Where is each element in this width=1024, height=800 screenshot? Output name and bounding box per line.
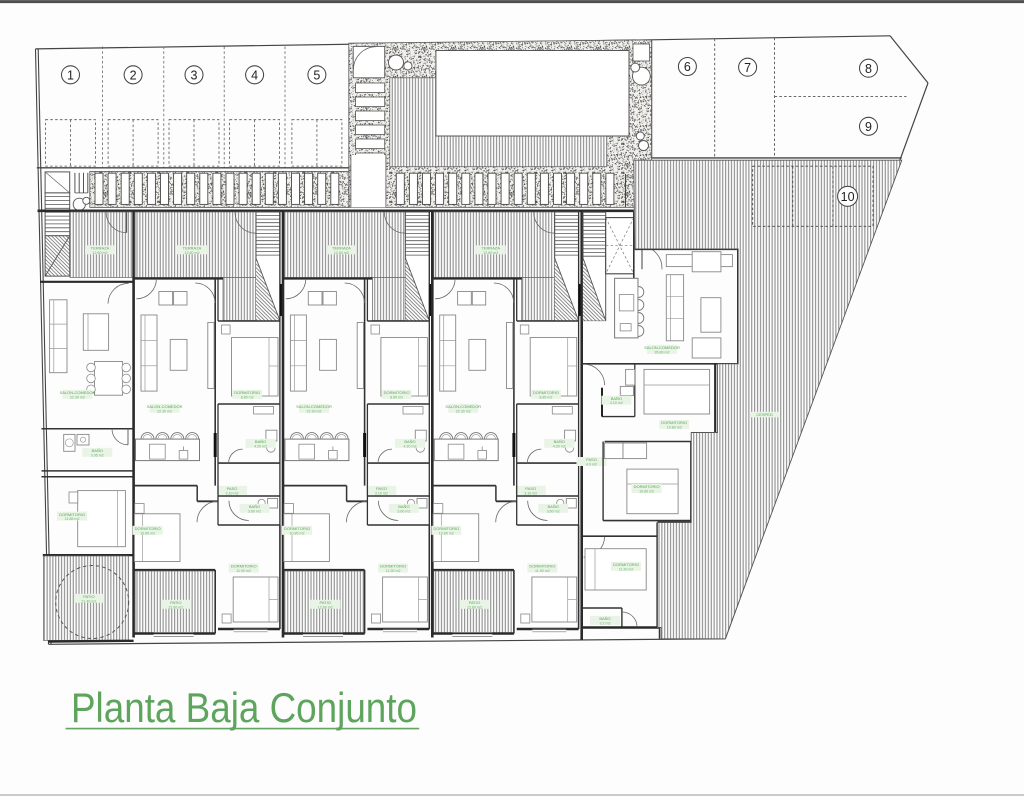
svg-text:9: 9 bbox=[865, 120, 872, 134]
svg-text:PASO: PASO bbox=[376, 486, 387, 491]
svg-text:1: 1 bbox=[67, 68, 74, 82]
svg-text:11.90 m2: 11.90 m2 bbox=[236, 569, 251, 573]
svg-text:PATIO: PATIO bbox=[469, 600, 480, 605]
svg-text:SALON-COMEDOR: SALON-COMEDOR bbox=[644, 345, 680, 350]
svg-text:DORMITORIO: DORMITORIO bbox=[613, 562, 639, 567]
svg-text:DORMITORIO: DORMITORIO bbox=[384, 390, 410, 395]
svg-text:7: 7 bbox=[744, 61, 751, 75]
svg-text:12.60 m2: 12.60 m2 bbox=[168, 605, 183, 609]
svg-text:SALON-COMEDOR: SALON-COMEDOR bbox=[60, 390, 96, 395]
svg-text:BAÑO: BAÑO bbox=[599, 616, 610, 621]
svg-text:PASO: PASO bbox=[227, 486, 238, 491]
svg-text:SALON-COMEDOR: SALON-COMEDOR bbox=[445, 404, 481, 409]
svg-text:BAÑO: BAÑO bbox=[92, 448, 103, 453]
svg-text:4.20 m2: 4.20 m2 bbox=[553, 444, 566, 448]
svg-text:PATIO: PATIO bbox=[170, 600, 181, 605]
svg-text:PATIO: PATIO bbox=[83, 594, 94, 599]
svg-text:26.80 m2: 26.80 m2 bbox=[655, 350, 670, 354]
svg-text:10.85 m2: 10.85 m2 bbox=[140, 531, 155, 535]
svg-text:Planta Baja Conjunto: Planta Baja Conjunto bbox=[71, 684, 417, 731]
svg-text:4.20 m2: 4.20 m2 bbox=[404, 444, 417, 448]
svg-text:CESPED: CESPED bbox=[756, 412, 773, 417]
svg-text:4.10 m2: 4.10 m2 bbox=[610, 401, 623, 405]
svg-text:3: 3 bbox=[191, 68, 198, 82]
svg-text:2: 2 bbox=[130, 68, 137, 82]
svg-text:11.90 m2: 11.90 m2 bbox=[535, 569, 550, 573]
svg-text:3.10 m2: 3.10 m2 bbox=[226, 491, 239, 495]
svg-text:4: 4 bbox=[251, 68, 258, 82]
svg-text:PASO: PASO bbox=[525, 486, 536, 491]
svg-text:SALON-COMEDOR: SALON-COMEDOR bbox=[296, 404, 332, 409]
svg-text:3.60 m2: 3.60 m2 bbox=[248, 509, 261, 513]
svg-text:8.85 m2: 8.85 m2 bbox=[390, 395, 403, 399]
svg-text:3.10 m2: 3.10 m2 bbox=[375, 491, 388, 495]
svg-text:DORMITORIO: DORMITORIO bbox=[234, 390, 260, 395]
svg-text:5: 5 bbox=[313, 68, 320, 82]
svg-text:10.85 m2: 10.85 m2 bbox=[290, 531, 305, 535]
svg-text:DORMITORIO: DORMITORIO bbox=[380, 564, 406, 569]
svg-text:12.60 m2: 12.60 m2 bbox=[93, 251, 108, 255]
svg-text:10: 10 bbox=[841, 190, 855, 204]
svg-text:DORMITORIO: DORMITORIO bbox=[59, 512, 85, 517]
svg-text:BAÑO: BAÑO bbox=[249, 504, 260, 509]
svg-text:8.85 m2: 8.85 m2 bbox=[539, 395, 552, 399]
svg-text:PATIO: PATIO bbox=[319, 600, 330, 605]
svg-text:4.9 m2: 4.9 m2 bbox=[586, 463, 597, 467]
svg-text:22.30 m2: 22.30 m2 bbox=[456, 409, 471, 413]
svg-text:10.80 m2: 10.80 m2 bbox=[667, 426, 682, 430]
svg-text:DORMITORIO: DORMITORIO bbox=[634, 484, 660, 489]
svg-text:BAÑO: BAÑO bbox=[255, 439, 266, 444]
svg-text:4.20 m2: 4.20 m2 bbox=[254, 444, 267, 448]
svg-text:DORMITORIO: DORMITORIO bbox=[533, 390, 559, 395]
svg-text:12.60 m2: 12.60 m2 bbox=[318, 605, 333, 609]
svg-text:6: 6 bbox=[684, 60, 691, 74]
svg-text:11.85 m2: 11.85 m2 bbox=[65, 517, 80, 521]
svg-text:PASO: PASO bbox=[586, 457, 597, 462]
svg-text:DORMITORIO: DORMITORIO bbox=[284, 526, 310, 531]
svg-text:10.85 m2: 10.85 m2 bbox=[439, 531, 454, 535]
svg-text:3.95 m2: 3.95 m2 bbox=[91, 453, 104, 457]
svg-text:12.60 m2: 12.60 m2 bbox=[185, 251, 200, 255]
svg-text:BAÑO: BAÑO bbox=[398, 504, 409, 509]
svg-text:12.60 m2: 12.60 m2 bbox=[483, 251, 498, 255]
svg-text:8: 8 bbox=[865, 62, 872, 76]
svg-text:DORMITORIO: DORMITORIO bbox=[231, 564, 257, 569]
svg-text:BAÑO: BAÑO bbox=[548, 504, 559, 509]
svg-text:3.2 m2: 3.2 m2 bbox=[600, 621, 611, 625]
svg-text:BAÑO: BAÑO bbox=[611, 396, 622, 401]
svg-text:21.40 m2: 21.40 m2 bbox=[81, 599, 96, 603]
svg-text:DORMITORIO: DORMITORIO bbox=[661, 420, 687, 425]
svg-text:BAÑO: BAÑO bbox=[554, 439, 565, 444]
svg-text:TERRAZA: TERRAZA bbox=[332, 246, 351, 251]
svg-text:BAÑO: BAÑO bbox=[404, 439, 415, 444]
svg-text:TERRAZA: TERRAZA bbox=[183, 246, 202, 251]
svg-text:SALON-COMEDOR: SALON-COMEDOR bbox=[147, 404, 183, 409]
svg-text:TERRAZA: TERRAZA bbox=[481, 246, 500, 251]
svg-text:11.20 m2: 11.20 m2 bbox=[619, 567, 634, 571]
svg-text:22.30 m2: 22.30 m2 bbox=[157, 409, 172, 413]
svg-text:22.30 m2: 22.30 m2 bbox=[70, 395, 85, 399]
svg-text:3.60 m2: 3.60 m2 bbox=[397, 509, 410, 513]
svg-text:DORMITORIO: DORMITORIO bbox=[135, 526, 161, 531]
svg-text:DORMITORIO: DORMITORIO bbox=[433, 526, 459, 531]
svg-text:22.30 m2: 22.30 m2 bbox=[307, 409, 322, 413]
svg-text:12.60 m2: 12.60 m2 bbox=[334, 251, 349, 255]
svg-text:3.10 m2: 3.10 m2 bbox=[524, 491, 537, 495]
svg-text:TERRAZA: TERRAZA bbox=[91, 246, 110, 251]
svg-text:12.60 m2: 12.60 m2 bbox=[467, 605, 482, 609]
svg-text:3.60 m2: 3.60 m2 bbox=[547, 509, 560, 513]
svg-text:11.90 m2: 11.90 m2 bbox=[386, 569, 401, 573]
svg-text:10.60 m2: 10.60 m2 bbox=[639, 490, 654, 494]
svg-text:DORMITORIO: DORMITORIO bbox=[529, 564, 555, 569]
svg-text:8.85 m2: 8.85 m2 bbox=[241, 395, 254, 399]
